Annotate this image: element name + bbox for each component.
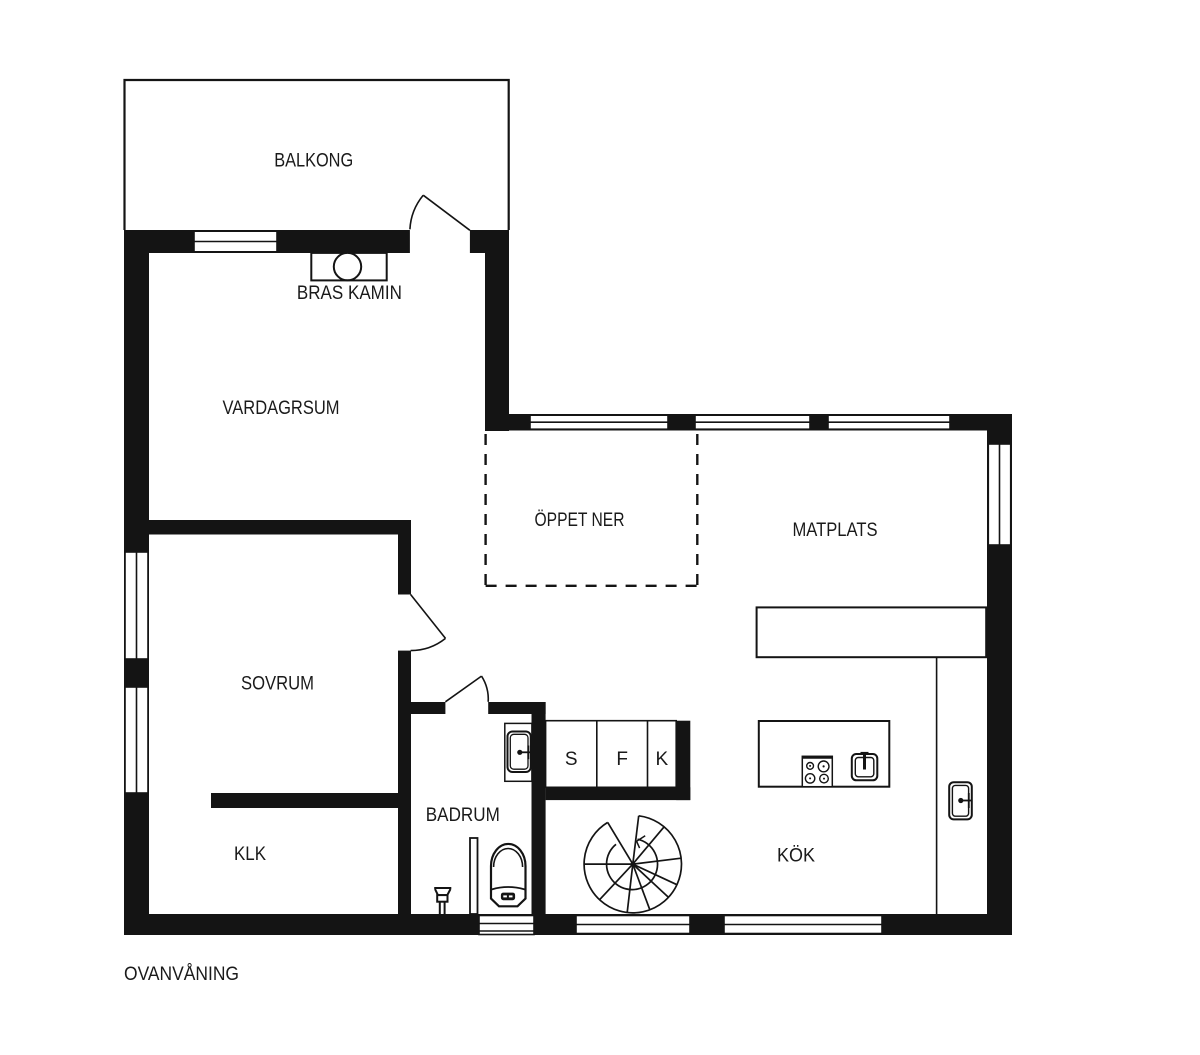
svg-text:S: S xyxy=(565,749,578,770)
svg-text:BRAS KAMIN: BRAS KAMIN xyxy=(297,282,402,304)
svg-text:KÖK: KÖK xyxy=(777,845,815,867)
svg-text:BALKONG: BALKONG xyxy=(274,150,353,172)
svg-text:OVANVÅNING: OVANVÅNING xyxy=(124,962,239,985)
svg-text:KLK: KLK xyxy=(234,843,266,865)
svg-text:VARDAGRSUM: VARDAGRSUM xyxy=(223,397,340,419)
svg-text:K: K xyxy=(656,749,669,770)
svg-text:BADRUM: BADRUM xyxy=(426,804,500,826)
svg-text:MATPLATS: MATPLATS xyxy=(793,519,878,541)
svg-text:ÖPPET NER: ÖPPET NER xyxy=(535,509,625,531)
svg-text:SOVRUM: SOVRUM xyxy=(241,673,314,695)
svg-text:F: F xyxy=(616,749,628,770)
